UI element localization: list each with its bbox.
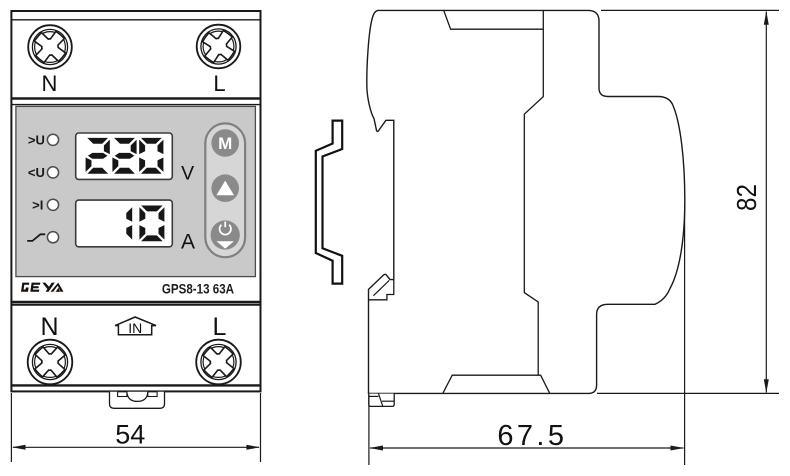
svg-text:GPS8-13 63A: GPS8-13 63A	[162, 281, 234, 297]
svg-text:N: N	[42, 71, 58, 96]
svg-text:IN: IN	[128, 320, 142, 336]
svg-text:54: 54	[115, 419, 145, 449]
svg-text:>U: >U	[28, 133, 45, 148]
svg-text:82: 82	[733, 184, 763, 211]
svg-text:67.5: 67.5	[497, 420, 567, 452]
svg-text:V: V	[181, 162, 194, 184]
svg-text:N: N	[40, 313, 58, 341]
svg-text:<U: <U	[28, 165, 45, 180]
svg-text:A: A	[181, 230, 195, 253]
svg-text:L: L	[213, 313, 227, 341]
svg-text:>I: >I	[32, 198, 43, 213]
svg-text:M: M	[218, 134, 232, 153]
svg-text:L: L	[213, 71, 225, 96]
